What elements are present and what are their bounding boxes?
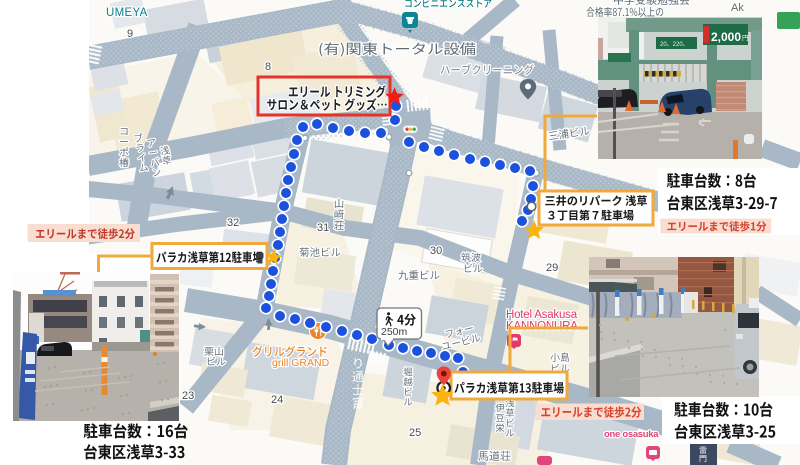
svg-text:25: 25 xyxy=(409,427,421,439)
svg-text:24: 24 xyxy=(271,394,283,406)
svg-text:8: 8 xyxy=(265,61,271,73)
svg-text:Hotel Asakusa: Hotel Asakusa xyxy=(506,309,578,321)
svg-text:9: 9 xyxy=(127,28,133,40)
svg-text:UMEYA: UMEYA xyxy=(106,7,148,19)
svg-text:31: 31 xyxy=(317,222,329,234)
svg-text:2,000: 2,000 xyxy=(711,30,741,44)
svg-text:20、220、: 20、220、 xyxy=(660,42,689,48)
svg-text:23: 23 xyxy=(182,390,194,402)
svg-text:grill GRAND: grill GRAND xyxy=(272,357,330,369)
svg-text:32: 32 xyxy=(227,217,239,229)
svg-text:29: 29 xyxy=(546,262,558,274)
svg-text:250m: 250m xyxy=(381,326,408,338)
svg-text:Ak: Ak xyxy=(731,2,744,14)
svg-text:one osasuka: one osasuka xyxy=(604,429,659,440)
svg-text:円: 円 xyxy=(742,34,749,42)
svg-text:30: 30 xyxy=(430,245,442,257)
